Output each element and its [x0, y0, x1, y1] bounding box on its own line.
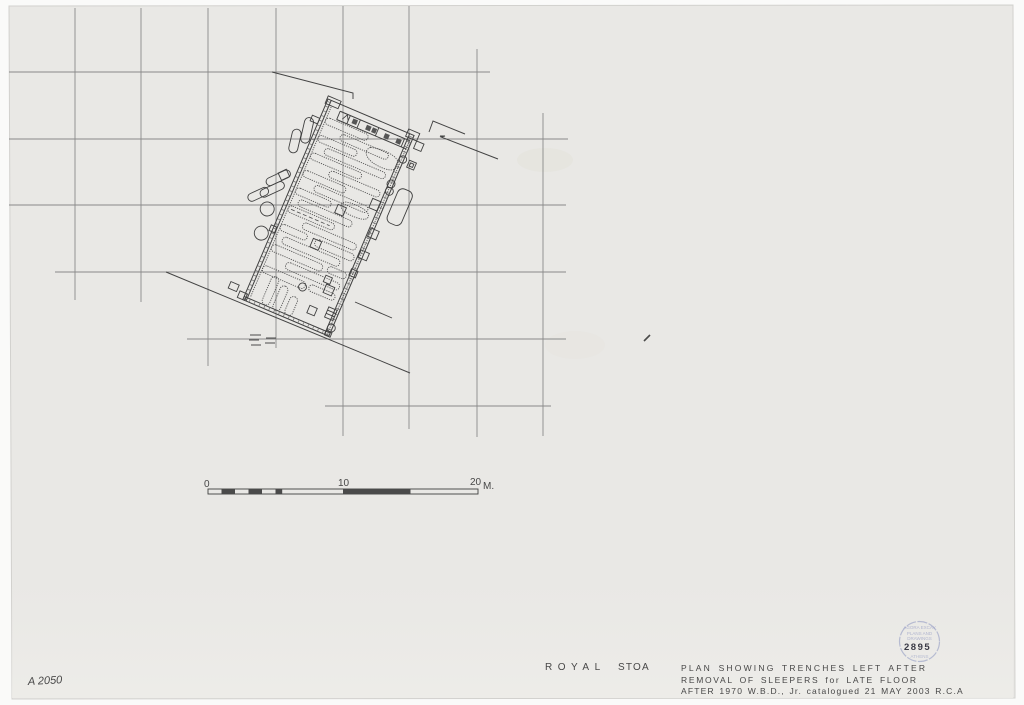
svg-text:DRAWINGS: DRAWINGS — [907, 636, 932, 641]
svg-text:20: 20 — [470, 477, 482, 488]
svg-text:2895: 2895 — [904, 642, 931, 653]
svg-text:10: 10 — [338, 478, 350, 489]
svg-text:A 2050: A 2050 — [27, 674, 64, 688]
svg-text:AGORA EXCAV: AGORA EXCAV — [903, 625, 935, 630]
svg-text:REMOVAL OF SLEEPERS for LAT: REMOVAL OF SLEEPERS for LATE FLOOR — [681, 675, 918, 685]
svg-text:AFTER 1970 W.B.D., Jr.: AFTER 1970 W.B.D., Jr. catalogued 21 MAY… — [681, 686, 964, 696]
svg-text:0: 0 — [204, 479, 210, 490]
svg-text:ROYAL: ROYAL — [545, 662, 606, 673]
svg-text:STOA: STOA — [618, 662, 650, 673]
svg-text:ATHENS: ATHENS — [911, 654, 929, 659]
svg-text:M.: M. — [483, 481, 494, 492]
svg-text:PLAN SHOWING TRENCHES LEFT: PLAN SHOWING TRENCHES LEFT AFTER — [681, 663, 927, 673]
